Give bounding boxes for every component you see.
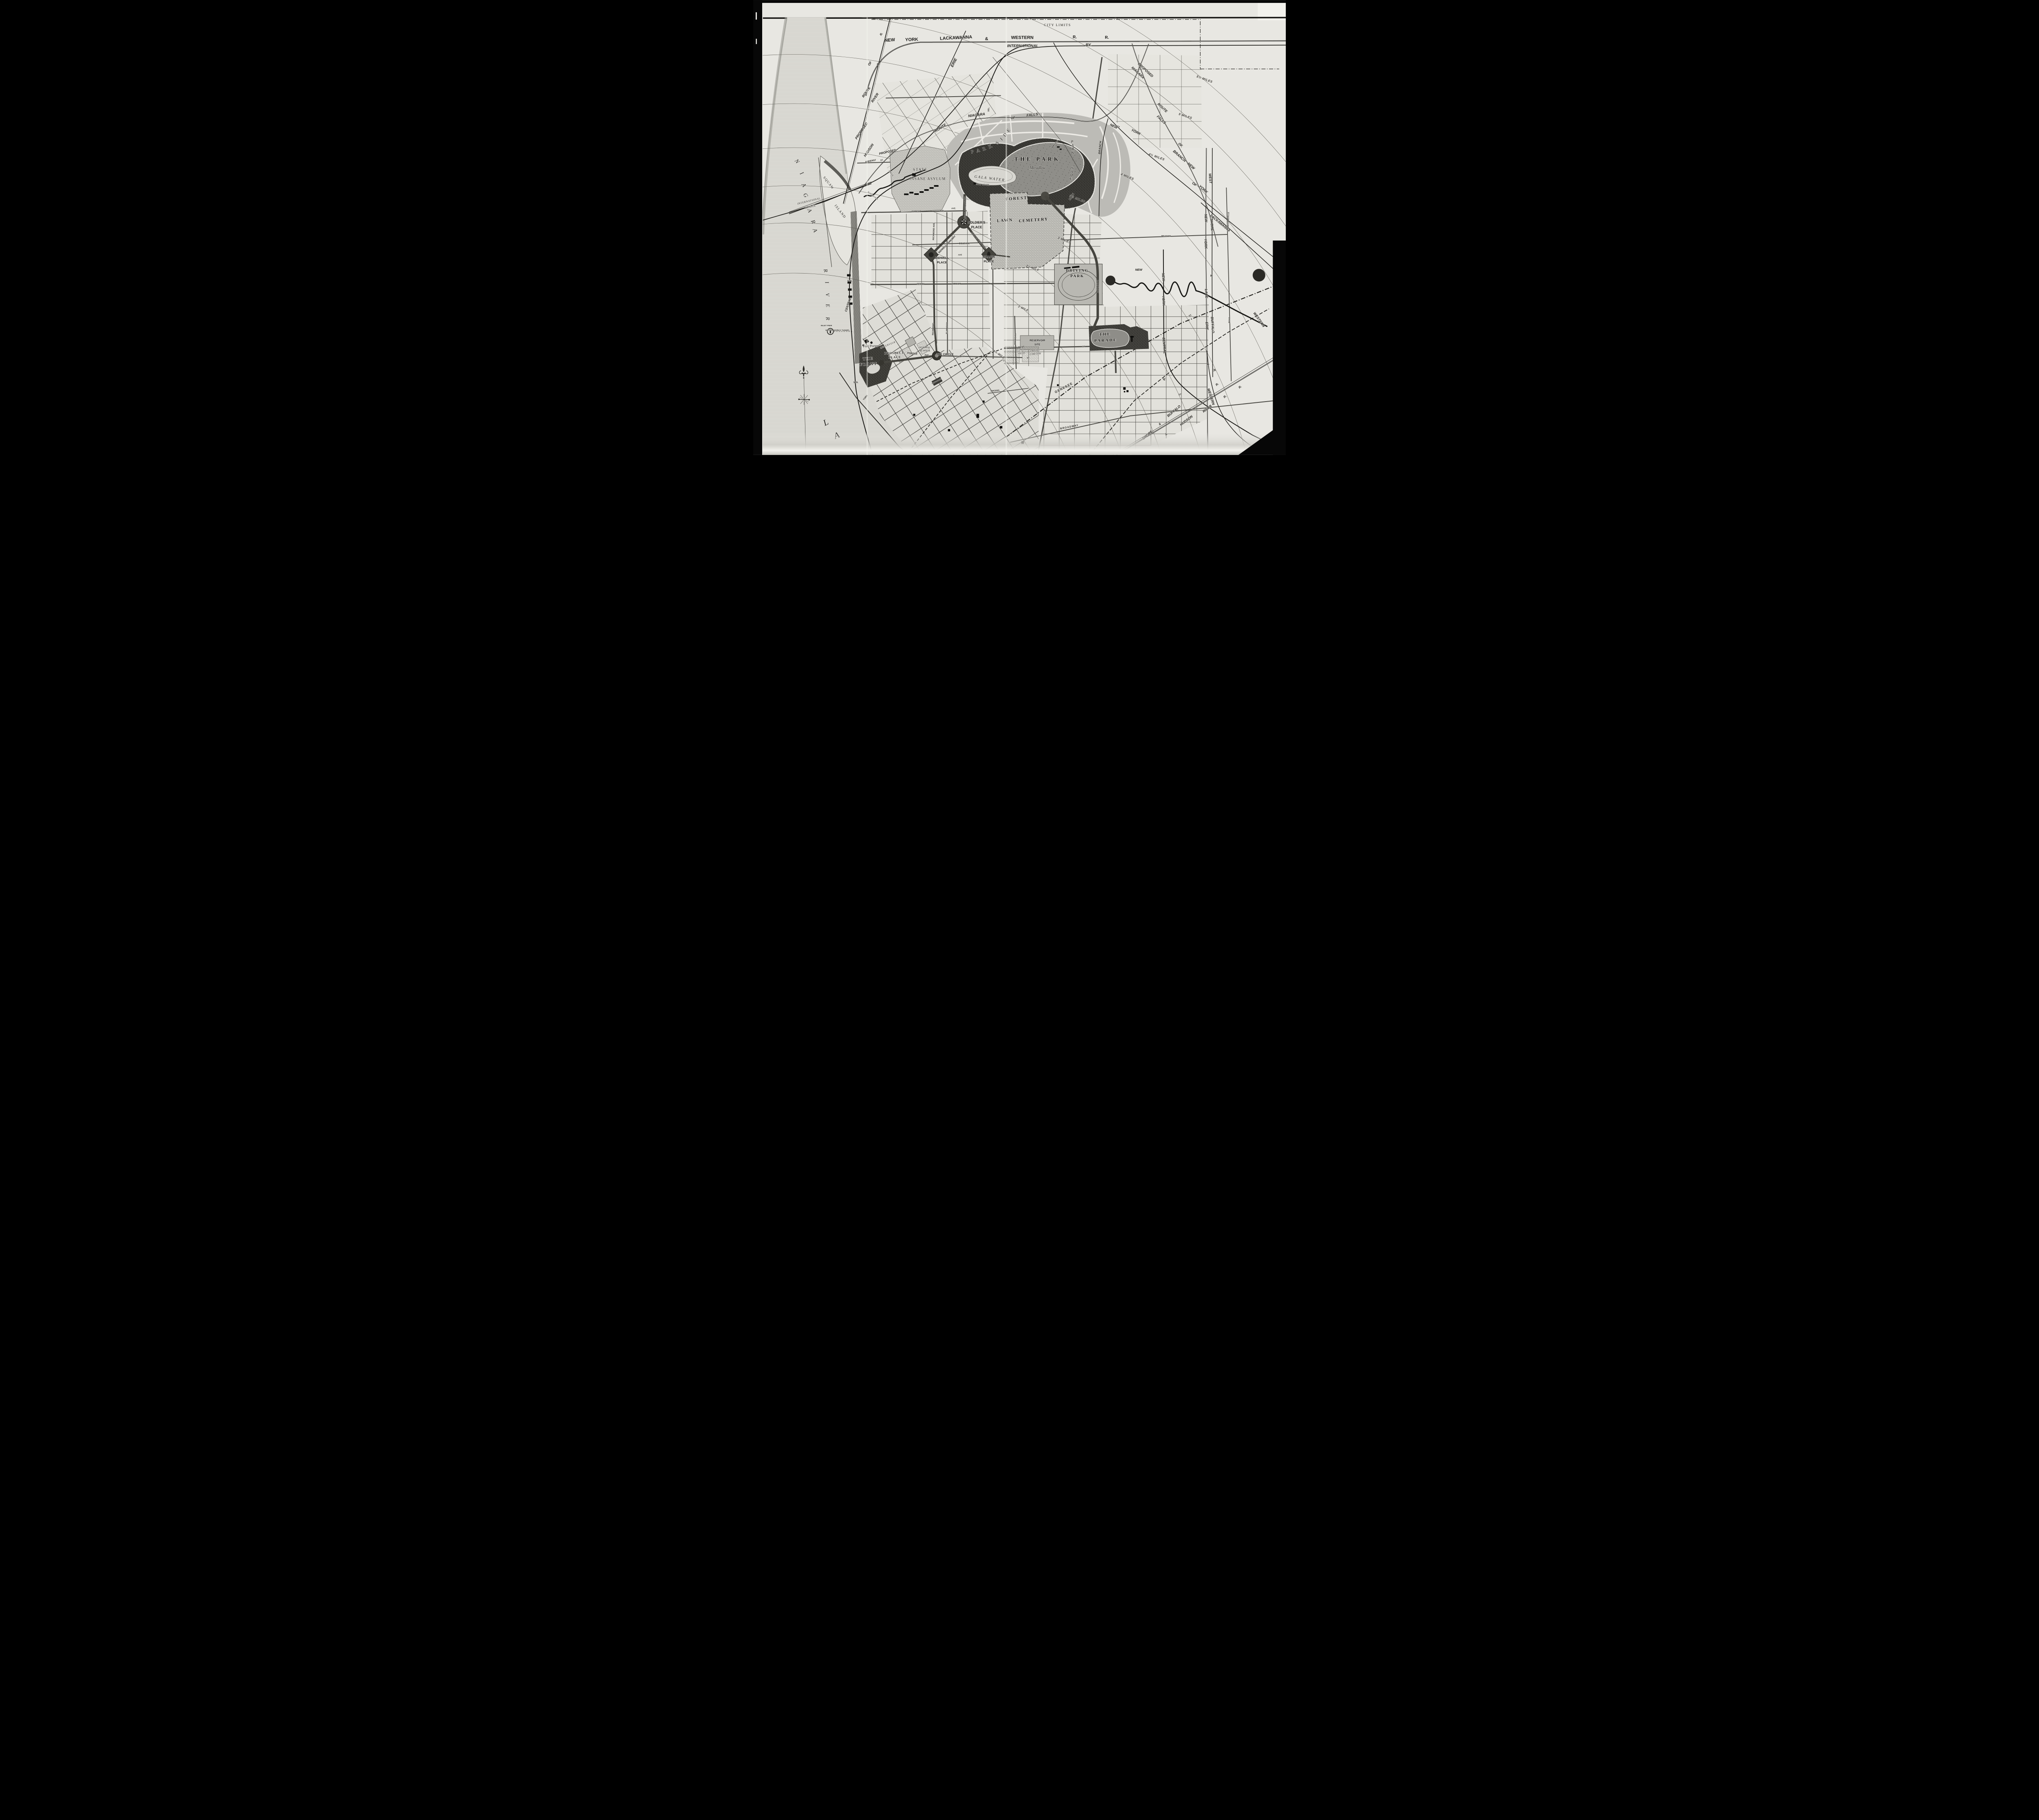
label-r-a: R. [1162, 377, 1166, 381]
label-road: ROAD [1228, 317, 1231, 323]
label-nyc-new: NEW [1161, 273, 1165, 281]
label-front-1: THE [863, 357, 874, 361]
label-normal-1: NORMAL [919, 346, 931, 349]
label-forest-ave-1: FOREST [912, 210, 921, 213]
label-reservoir-site-1: RESERVOIR [1030, 339, 1045, 342]
label-north: NORTH [957, 356, 964, 358]
label-sta-front: STA. [854, 381, 859, 384]
label-nylw-r2: R. [1105, 35, 1109, 40]
label-parade-2: PARADE [1094, 338, 1117, 343]
label-nylw-new: NEW [885, 38, 896, 43]
label-inlet-pier: INLET PIER [821, 325, 832, 327]
label-prospect-1: PROSPECT [885, 351, 904, 355]
label-bidwell-pl-1: BIDWELL [935, 256, 949, 260]
label-le-york: YORK [1203, 239, 1208, 249]
label-ps-r-k: K [1071, 151, 1074, 155]
label-sta-blackrock: STA. [847, 280, 853, 282]
label-intl-ry-1: INTERNATIONAL [1007, 44, 1039, 49]
scanned-map-page: CITY LIMITSNEWYORKLACKAWANNA&WESTERNR.R.… [753, 0, 1286, 455]
parade-south-street [1115, 351, 1116, 373]
label-driving-2: PARK [1070, 274, 1084, 278]
label-soldiers-2: PLACE [971, 225, 982, 229]
label-ws-amp: & [1210, 274, 1213, 277]
film-edge-top [753, 0, 1286, 3]
label-delevan-w: DELEVAN [959, 243, 969, 245]
label-le-lake: LAKE [1204, 289, 1209, 298]
label-elmwood-v: ELMWOOD [946, 322, 949, 334]
label-insane-asylum: INSANE ASYLUM [909, 177, 946, 181]
label-ferry-1: FERRY [917, 283, 924, 285]
label-state: STATE [913, 168, 928, 172]
label-the-park: THE PARK [1014, 156, 1060, 162]
label-best-st: ST. [1027, 357, 1030, 360]
label-fort-porter: Fort Porter [863, 344, 878, 348]
label-nylw-r1: R. [1073, 35, 1077, 40]
buffalo-park-system-map: CITY LIMITSNEWYORKLACKAWANNA&WESTERNR.R.… [753, 0, 1286, 455]
label-ave-bird: AVE. [951, 207, 956, 210]
label-nyc-york: YORK [1161, 296, 1166, 306]
label-forest-ave-2: AVE [940, 210, 944, 212]
label-reservoir-site-2: SITE [1035, 343, 1041, 346]
label-driving-1: DRIVING [1066, 269, 1089, 273]
east-pond [1253, 269, 1265, 281]
label-city-limits: CITY LIMITS [1044, 23, 1071, 27]
label-le-erie: ERIE [1205, 322, 1209, 330]
label-michigan: MICHIGAN [1014, 334, 1017, 345]
label-delevan-e: DELEVAN [1161, 235, 1171, 237]
label-meadow: Meadow [1029, 166, 1046, 170]
label-r-e: R. [1213, 369, 1217, 372]
label-st-bottom: ST. [1179, 393, 1182, 396]
film-sprocket-mark-1 [756, 12, 757, 20]
label-intl-ry-2: RY. [1086, 43, 1092, 47]
label-ave-delevan: AVE [958, 254, 962, 256]
fold-crease-2 [1006, 18, 1007, 455]
label-the-circle: THE CIRCLE [936, 353, 953, 356]
label-ferry-2: STREET [952, 283, 961, 285]
fold-crease-1 [867, 18, 868, 455]
film-sprocket-mark-2 [756, 39, 756, 44]
label-richmond-v: RICHMOND [932, 323, 935, 335]
film-edge-left [753, 0, 762, 455]
label-del-st: DEL. [988, 107, 990, 112]
label-chapin-pl-1: CHAPIN [983, 255, 995, 258]
label-st-best-e: ST. [1082, 346, 1086, 348]
label-ps-r-r: R [1072, 147, 1075, 151]
label-lincoln-pkwy: LINCOLN PARKWAY [964, 197, 967, 220]
label-nylw-york: YORK [905, 37, 918, 42]
label-prospect-2: PLACE [889, 355, 901, 359]
bidwell-place-center [929, 252, 933, 257]
label-ws-west: WEST [1208, 173, 1213, 184]
label-hertel-ave: HERTEL AVE. [935, 96, 948, 98]
potters-field [1005, 347, 1019, 363]
label-normal-2: SCHOOL [920, 349, 930, 352]
label-water-works: WATER WORKS TUNNEL [825, 329, 850, 331]
label-new-lake: NEW [1135, 268, 1143, 272]
label-ws-shore: SHORE [1210, 219, 1214, 231]
map-top-border [763, 18, 1286, 18]
label-parade-1: THE [1099, 332, 1111, 337]
front-terminus-node [879, 360, 884, 365]
page-curl-shadow [763, 432, 1286, 455]
label-chapin-pl-2: PLACE [984, 259, 994, 263]
label-amp-vert: & [1206, 363, 1210, 365]
label-bidwell-pl-2: PLACE [937, 261, 947, 264]
label-porter-ave-2: AVE [924, 354, 929, 357]
label-nylw-western: WESTERN [1011, 35, 1033, 40]
label-nylw-amp: & [985, 36, 988, 41]
label-le-new: NEW [1204, 214, 1208, 223]
driving-park-pond [1106, 276, 1115, 285]
label-soldiers-1: SOLDIER'S [968, 221, 986, 225]
